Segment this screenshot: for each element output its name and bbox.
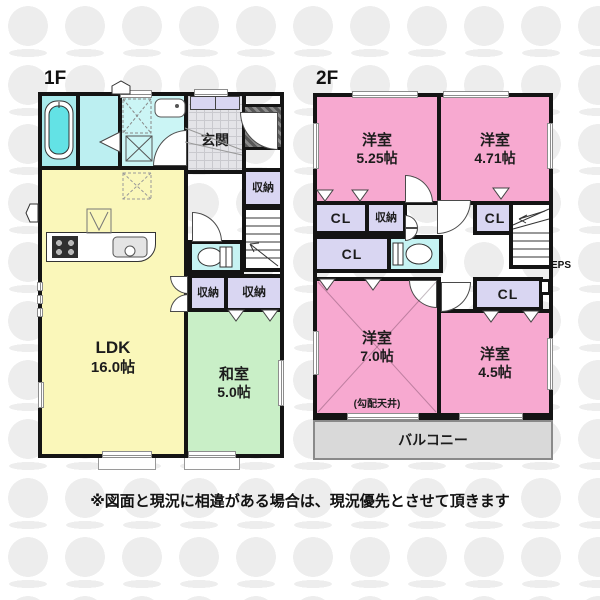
window bbox=[120, 90, 152, 98]
vanity-sink-icon bbox=[154, 98, 186, 123]
closet-dashed-box-icon bbox=[122, 98, 152, 139]
washitsu-name: 和室 bbox=[219, 366, 249, 383]
closet-a: 収納 bbox=[188, 274, 228, 312]
closet-a-label: 収納 bbox=[197, 287, 219, 300]
cl3-label: CL bbox=[485, 210, 506, 226]
closet-b: 収納 bbox=[224, 274, 284, 312]
ldk-size: 16.0帖 bbox=[91, 359, 135, 376]
cl4-label: CL bbox=[498, 286, 519, 302]
closet-entry-label: 収納 bbox=[252, 182, 274, 195]
closet-entry: 収納 bbox=[242, 168, 284, 208]
vent-slit bbox=[37, 295, 43, 304]
room-471: 洋室 4.71帖 bbox=[437, 93, 553, 205]
bathtub-icon bbox=[44, 100, 74, 160]
balcony-door-window bbox=[459, 413, 523, 420]
toilet-icon-2f bbox=[391, 239, 439, 274]
balcony-door-window bbox=[347, 413, 419, 420]
stairs-1f bbox=[242, 206, 284, 272]
range-hood-icon bbox=[86, 208, 112, 239]
shoe-cabinet-icon bbox=[190, 96, 240, 110]
vent-slit bbox=[37, 308, 43, 317]
bay-window-outline bbox=[98, 458, 156, 470]
window bbox=[278, 360, 284, 406]
window bbox=[313, 123, 319, 169]
room-45-size: 4.5帖 bbox=[478, 364, 511, 380]
cl2-label: CL bbox=[342, 246, 363, 262]
room-525-name: 洋室 bbox=[362, 132, 392, 149]
room-70-note: (勾配天井) bbox=[317, 399, 437, 411]
washitsu-size: 5.0帖 bbox=[217, 384, 250, 400]
vent-slit bbox=[37, 282, 43, 291]
floor1-label: 1F bbox=[44, 68, 66, 90]
closet-b-label: 収納 bbox=[242, 286, 266, 300]
bay-window-outline bbox=[184, 458, 240, 470]
closet-cl4: CL bbox=[473, 277, 543, 311]
window bbox=[547, 338, 553, 390]
room-washitsu: 和室 5.0帖 bbox=[184, 308, 284, 458]
disclaimer-text: ※図面と現況に相違がある場合は、現況優先とさせて頂きます bbox=[0, 490, 600, 511]
room-70-name: 洋室 bbox=[362, 330, 392, 347]
ldk-dashed-box-icon bbox=[122, 172, 152, 205]
closet-cl1: CL bbox=[313, 201, 369, 235]
genkan-label: 玄関 bbox=[201, 132, 229, 148]
room-45-name: 洋室 bbox=[480, 346, 510, 363]
room-70-size: 7.0帖 bbox=[360, 348, 393, 364]
floor1-plan: 玄関 収納 収納 収納 LDK 16.0帖 和室 5.0帖 bbox=[38, 92, 284, 458]
room-471-size: 4.71帖 bbox=[474, 150, 515, 166]
stove-icon bbox=[52, 236, 78, 258]
window bbox=[313, 331, 319, 375]
washer-pan-icon bbox=[125, 135, 153, 167]
window bbox=[102, 451, 152, 458]
floorplan-canvas: 1F 2F 玄関 収納 収納 収納 LDK 16.0帖 和室 5.0帖 bbox=[0, 0, 600, 600]
window bbox=[188, 451, 236, 458]
room-ldk: LDK 16.0帖 bbox=[38, 166, 188, 458]
floor2-label: 2F bbox=[316, 68, 338, 90]
balcony-label: バルコニー bbox=[398, 430, 468, 450]
balcony: バルコニー bbox=[313, 420, 553, 460]
floor2-plan: 洋室 5.25帖 洋室 4.71帖 CL 収納 CL CL CL 洋室 7.0帖… bbox=[313, 93, 553, 462]
kitchen-sink-icon bbox=[112, 236, 148, 263]
eps-label: EPS bbox=[551, 260, 571, 271]
room-45: 洋室 4.5帖 bbox=[437, 309, 553, 417]
shuno-2f-label: 収納 bbox=[375, 212, 397, 225]
closet-cl2: CL bbox=[313, 235, 391, 273]
window bbox=[547, 123, 553, 169]
cl1-label: CL bbox=[331, 210, 352, 226]
eps-shaft bbox=[539, 279, 551, 295]
window bbox=[38, 382, 44, 408]
room-laundry bbox=[76, 92, 122, 170]
closet-shuno-2f: 収納 bbox=[365, 201, 407, 235]
window bbox=[443, 91, 509, 98]
ldk-name: LDK bbox=[96, 338, 131, 358]
room-471-name: 洋室 bbox=[480, 132, 510, 149]
toilet-icon-1f bbox=[196, 243, 238, 276]
room-525-size: 5.25帖 bbox=[356, 150, 397, 166]
window bbox=[352, 91, 418, 98]
stairs-2f bbox=[509, 201, 553, 269]
